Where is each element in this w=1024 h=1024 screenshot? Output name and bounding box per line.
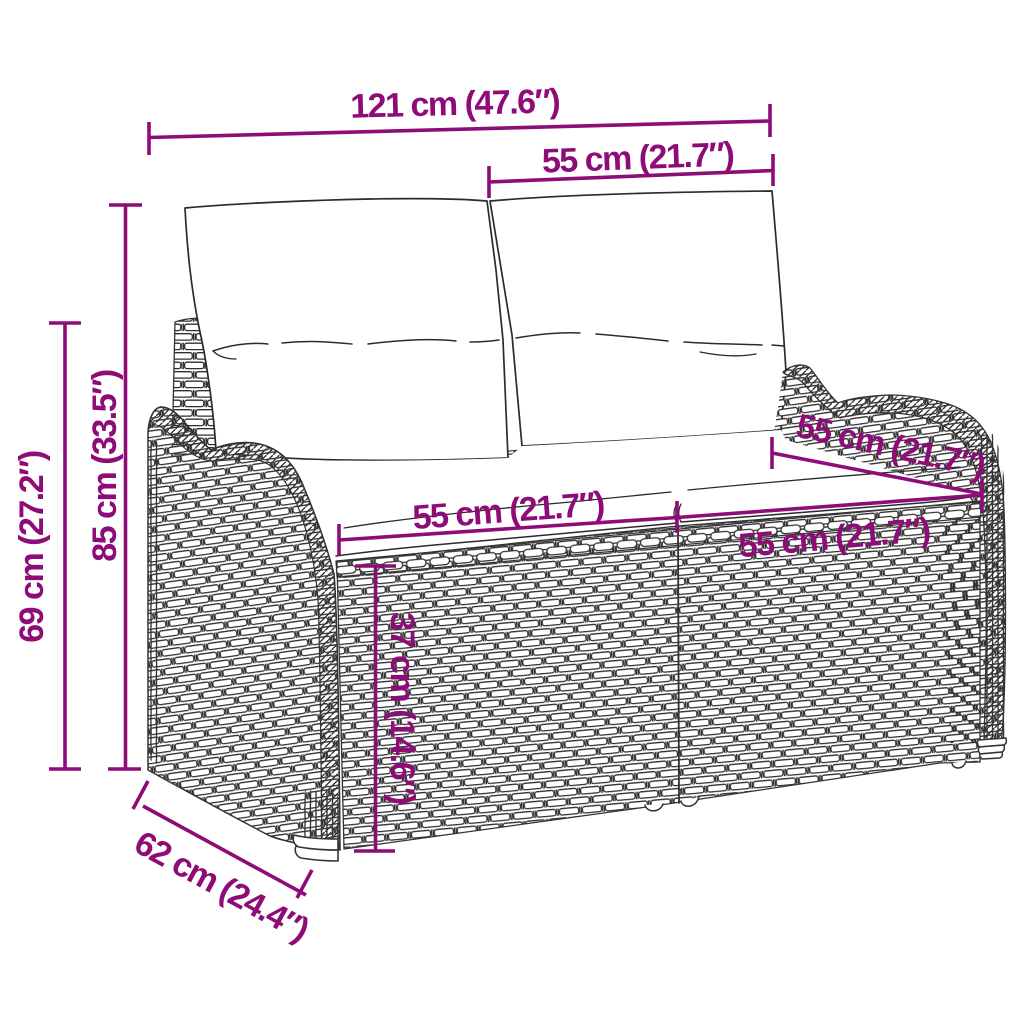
svg-text:121 cm (47.6″): 121 cm (47.6″) [350,82,560,125]
svg-text:69 cm (27.2″): 69 cm (27.2″) [13,451,51,643]
svg-text:37 cm (14.6″): 37 cm (14.6″) [383,612,421,804]
svg-text:85 cm (33.5″): 85 cm (33.5″) [86,370,124,562]
svg-text:55 cm (21.7″): 55 cm (21.7″) [541,135,734,180]
